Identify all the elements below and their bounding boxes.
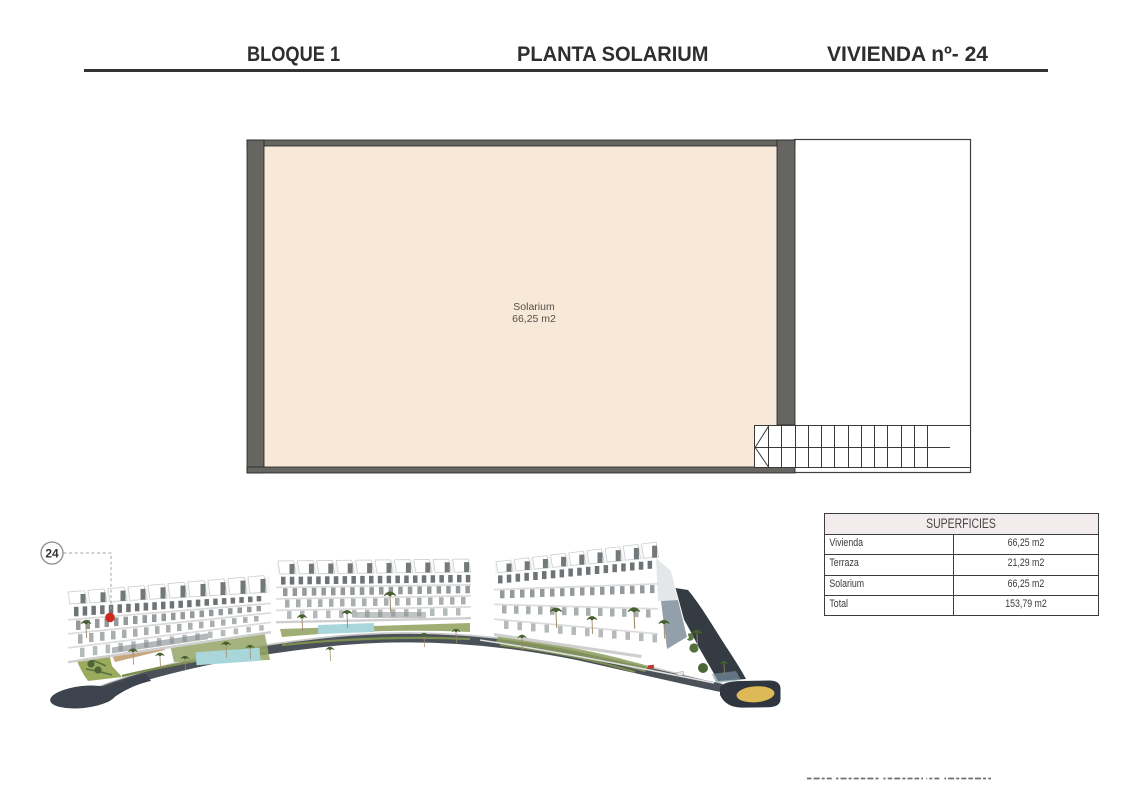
svg-text:24: 24 [45,547,59,561]
